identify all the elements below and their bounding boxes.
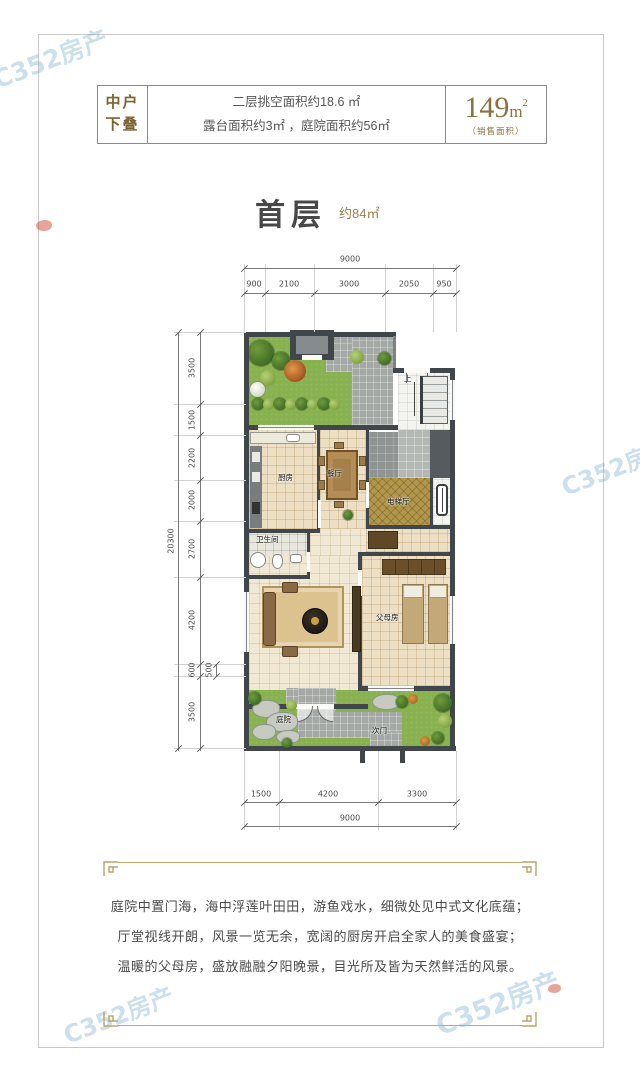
armchair	[282, 582, 298, 593]
dining-chair	[318, 480, 325, 490]
parents-window-east	[450, 596, 455, 644]
kitchen-label: 厨房	[278, 474, 293, 482]
area-desc-cell: 二层挑空面积约18.6 ㎡ 露台面积约3㎡ ，庭院面积约56㎡	[148, 86, 446, 143]
dim-line	[244, 802, 456, 803]
tv-cabinet	[352, 586, 361, 652]
unit-type-cell: 中户 下叠	[98, 86, 148, 143]
rockery-stone	[252, 724, 276, 740]
armchair	[282, 646, 298, 657]
stove	[252, 502, 260, 514]
kitchen-sink	[286, 434, 300, 442]
guide	[385, 264, 386, 332]
guide	[174, 748, 246, 749]
description-line: 温暖的父母房，盛放融融夕阳晚景，目光所及皆为天然鲜活的风景。	[100, 952, 540, 982]
dining-chair	[318, 456, 325, 466]
elevator-icon	[436, 484, 448, 516]
dim-left-seg: 1500	[188, 410, 197, 430]
courtyard-bush	[248, 692, 261, 705]
hall-cabinet	[368, 531, 398, 549]
dim-left-seg: 2000	[188, 490, 197, 510]
garden-fence	[393, 336, 396, 372]
elevator-hall-label: 电梯厅	[387, 498, 410, 506]
dining-chair	[334, 442, 344, 449]
red-logo-smudge-2	[548, 984, 561, 993]
hall-door-gap	[366, 482, 369, 508]
white-shrub	[250, 382, 265, 397]
header-info-box: 中户 下叠 二层挑空面积约18.6 ㎡ 露台面积约3㎡ ，庭院面积约56㎡ 14…	[97, 85, 547, 144]
kitchen-counter	[250, 432, 316, 444]
dining-chair	[359, 456, 366, 466]
area-desc-line1: 二层挑空面积约18.6 ㎡	[233, 91, 361, 114]
courtyard-label: 庭院	[276, 716, 291, 724]
entry-door-gap	[302, 355, 322, 360]
courtyard-tree	[432, 732, 444, 744]
unit-type-line2: 下叠	[105, 115, 139, 137]
courtyard-bush	[282, 738, 292, 748]
bed-pillow	[430, 586, 446, 598]
stair-direction-line	[414, 382, 415, 416]
area-badge-cell: 149m2 （销售面积）	[446, 86, 546, 143]
landing-floor	[398, 430, 430, 478]
appliance	[252, 452, 260, 462]
stairs-up-label: 上	[404, 375, 412, 383]
greek-key-corner-bottom-right	[522, 1012, 540, 1030]
bathroom-label: 卫生间	[256, 536, 279, 544]
entry-porch-floor	[296, 336, 328, 354]
tree	[248, 340, 274, 366]
tree	[350, 350, 364, 364]
description-line: 庭院中置门海，海中浮莲叶田田，游鱼戏水，细微处见中式文化底蕴；	[100, 892, 540, 922]
dining-chair	[334, 501, 344, 508]
dim-top-total: 9000	[340, 255, 360, 264]
appliance	[252, 472, 260, 482]
table-bowl	[311, 617, 319, 625]
courtyard-tree	[434, 694, 452, 712]
dim-line	[200, 332, 201, 751]
wall	[366, 430, 369, 528]
guide	[244, 751, 245, 830]
wall	[430, 478, 433, 529]
dim-left-total: 20300	[167, 528, 176, 553]
bed	[402, 584, 424, 644]
guide	[174, 577, 246, 578]
dim-bottom-total: 9000	[340, 814, 360, 823]
dim-left-seg: 2200	[188, 448, 197, 468]
hedge-bush	[285, 399, 296, 410]
orange-shrub	[420, 736, 430, 746]
greek-key-corner-bottom-left	[100, 1012, 118, 1030]
parents-room-label: 父母房	[376, 614, 399, 622]
courtyard-tree	[438, 714, 452, 728]
side-door-label: 次门	[372, 727, 387, 735]
guide	[279, 751, 280, 830]
kitchen-door-gap	[318, 500, 321, 528]
guide	[174, 332, 246, 333]
greek-key-corner-top-left	[100, 858, 118, 876]
dining-label: 餐厅	[327, 470, 342, 478]
ornament-line-top	[118, 862, 522, 863]
guide	[244, 264, 245, 332]
ornament-line-bottom	[118, 1025, 522, 1026]
kitchen-window	[258, 425, 314, 430]
description-line: 厅堂视线开朗，风景一览无余，宽阔的厨房开启全家人的美食盛宴；	[100, 922, 540, 952]
hedge-bush	[329, 399, 340, 410]
wall	[244, 575, 310, 579]
wall	[244, 746, 456, 751]
guide	[433, 264, 434, 332]
dim-bottom-seg: 3300	[407, 790, 427, 799]
dining-chair	[359, 480, 366, 490]
guide	[265, 264, 266, 332]
page-title: 首层	[255, 190, 327, 234]
wall	[366, 525, 450, 529]
guide	[174, 404, 246, 405]
dim-left-inner: 500	[205, 662, 214, 677]
guide	[174, 435, 246, 436]
guide	[456, 264, 457, 332]
dim-left-seg: 2700	[188, 539, 197, 559]
wall-post	[360, 751, 365, 763]
elevator-door-line	[442, 488, 443, 512]
dim-left-seg: 600	[188, 662, 197, 677]
living-window	[244, 592, 249, 652]
dim-top-seg: 2100	[279, 280, 299, 289]
guide	[174, 521, 246, 522]
dim-line	[244, 826, 456, 827]
page: C352房产 C352房产 C352房产 C352房产 中户 下叠 二层挑空面积…	[0, 0, 640, 1080]
orange-shrub	[408, 694, 418, 704]
guide	[314, 264, 315, 332]
guide	[456, 751, 457, 830]
area-value: 149m2	[464, 93, 527, 123]
dim-line	[244, 268, 456, 269]
tree	[378, 352, 391, 365]
wall	[244, 332, 249, 751]
rear-landing-floor	[369, 432, 398, 478]
guide	[378, 751, 379, 830]
area-note: （销售面积）	[467, 125, 524, 137]
dim-top-seg: 3000	[339, 280, 359, 289]
wardrobe	[382, 559, 446, 575]
dim-left-seg: 3500	[188, 702, 197, 722]
dim-top-seg: 2050	[399, 280, 419, 289]
dim-line	[244, 293, 456, 294]
parents-window-south	[368, 686, 414, 691]
dim-top-seg: 900	[246, 280, 261, 289]
dim-line	[178, 332, 179, 751]
wall-post	[400, 751, 405, 763]
hedge-bush	[263, 399, 274, 410]
page-title-area: 约84㎡	[339, 203, 379, 222]
bed	[428, 584, 448, 644]
unit-type-line1: 中户	[105, 93, 139, 115]
stair-window	[450, 380, 455, 420]
red-logo-smudge	[36, 220, 52, 231]
dim-bottom-seg: 4200	[318, 790, 338, 799]
dim-left-seg: 3500	[188, 358, 197, 378]
stair-rail	[420, 376, 423, 424]
red-maple-tree	[284, 360, 306, 382]
dim-left-seg: 4200	[188, 610, 197, 630]
bed-pillow	[404, 586, 422, 598]
shower	[250, 552, 266, 568]
sofa	[263, 592, 276, 646]
staircase	[422, 376, 448, 424]
bathroom-door-gap	[307, 552, 310, 572]
guide	[174, 480, 246, 481]
potted-plant	[343, 510, 353, 520]
courtyard-bush	[396, 696, 408, 708]
hedge-bush	[307, 399, 318, 410]
wall	[358, 552, 455, 556]
courtyard-bush	[286, 700, 297, 711]
area-desc-line2: 露台面积约3㎡ ，庭院面积约56㎡	[203, 115, 390, 138]
toilet	[272, 554, 283, 569]
marketing-description: 庭院中置门海，海中浮莲叶田田，游鱼戏水，细微处见中式文化底蕴； 厅堂视线开朗，风…	[100, 892, 540, 982]
duct-block	[430, 430, 450, 478]
greek-key-corner-top-right	[522, 858, 540, 876]
dim-top-seg: 950	[436, 280, 451, 289]
dim-bottom-seg: 1500	[251, 790, 271, 799]
sink	[290, 554, 302, 563]
